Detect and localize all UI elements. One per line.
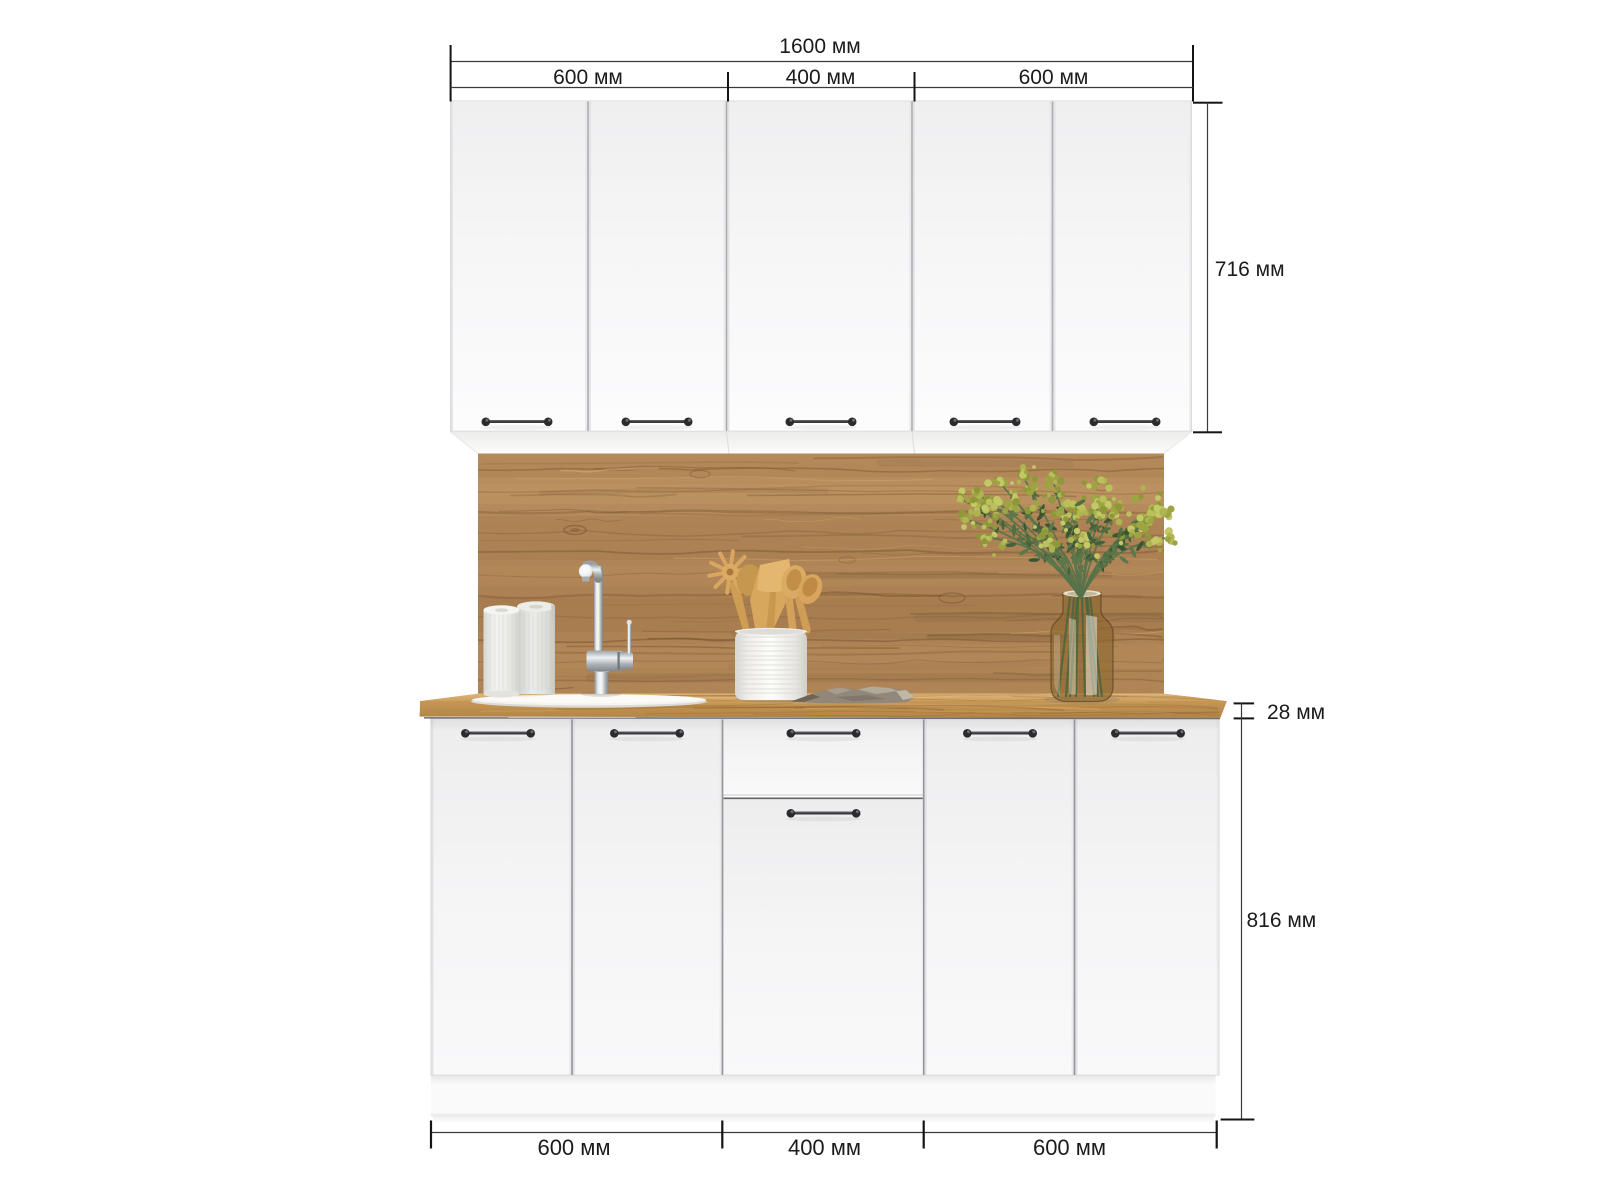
svg-text:1600 мм: 1600 мм <box>779 35 860 58</box>
svg-text:600 мм: 600 мм <box>553 66 623 89</box>
svg-text:400 мм: 400 мм <box>786 66 856 89</box>
svg-text:400 мм: 400 мм <box>788 1135 861 1160</box>
svg-text:816 мм: 816 мм <box>1247 909 1317 932</box>
svg-text:600 мм: 600 мм <box>537 1135 610 1160</box>
svg-text:600 мм: 600 мм <box>1019 66 1089 89</box>
svg-text:716 мм: 716 мм <box>1215 258 1285 281</box>
svg-text:600 мм: 600 мм <box>1033 1135 1106 1160</box>
svg-text:28 мм: 28 мм <box>1267 701 1325 724</box>
